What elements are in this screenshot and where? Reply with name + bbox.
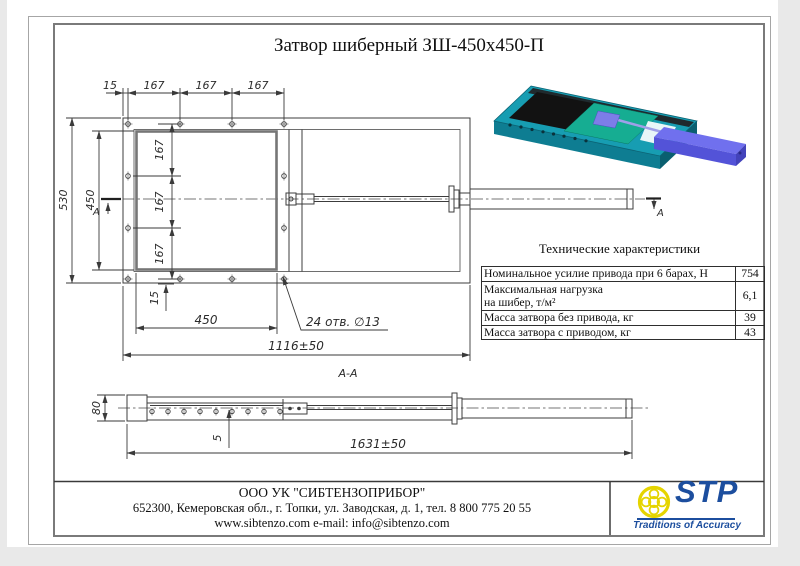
dim-section: 80 5 1631±50 — [90, 395, 632, 459]
dim-1116: 1116±50 — [268, 339, 324, 353]
dim-80: 80 — [90, 401, 103, 415]
company-address: 652300, Кемеровская обл., г. Топки, ул. … — [54, 501, 610, 516]
dim-167-inner-3: 167 — [153, 244, 166, 265]
section-view: A-A — [90, 367, 648, 459]
spec-value: 754 — [736, 267, 765, 282]
spec-label: Максимальная нагрузка на шибер, т/м² — [482, 282, 736, 311]
dim-167-top-1: 167 — [144, 79, 165, 92]
spec-value: 43 — [736, 326, 765, 340]
spec-label-line2: на шибер, т/м² — [484, 296, 733, 309]
dim-1631: 1631±50 — [350, 437, 406, 451]
render-3d — [494, 86, 746, 169]
stp-emblem-icon — [637, 485, 671, 519]
dim-167-inner-2: 167 — [153, 192, 166, 213]
drawing-title: Затвор шиберный ЗШ-450х450-П — [53, 35, 765, 57]
cylinder-section-view — [462, 399, 632, 418]
logo-cell: STP Traditions of Accuracy — [611, 482, 764, 536]
cut-letter-right: A — [656, 208, 664, 219]
dim-167-top-2: 167 — [196, 79, 217, 92]
spec-label-line1: Максимальная нагрузка — [484, 283, 733, 296]
table-row: Масса затвора без привода, кг 39 — [482, 311, 765, 326]
table-row: Максимальная нагрузка на шибер, т/м² 6,1 — [482, 282, 765, 311]
title-block: ООО УК "СИБТЕНЗОПРИБОР" 652300, Кемеровс… — [54, 483, 610, 531]
dim-167-inner-1: 167 — [153, 140, 166, 161]
dim-530: 530 — [57, 190, 70, 211]
dim-167-top-3: 167 — [248, 79, 269, 92]
holes-note: 24 отв. ∅13 — [306, 315, 380, 329]
table-row: Номинальное усилие привода при 6 барах, … — [482, 267, 765, 282]
table-row: Масса затвора с приводом, кг 43 — [482, 326, 765, 340]
section-label: A-A — [337, 367, 357, 380]
dim-bottom: 450 1116±50 24 отв. ∅13 — [123, 273, 470, 361]
section-bolt-holes — [150, 408, 282, 416]
dim-5: 5 — [211, 435, 224, 442]
logo-tagline: Traditions of Accuracy — [627, 520, 747, 531]
company-contacts: www.sibtenzo.com e-mail: info@sibtenzo.c… — [54, 516, 610, 531]
drawing-sheet: A A 15 167 167 167 — [0, 0, 800, 566]
dim-left: 530 450 — [57, 118, 134, 283]
flange-bolt-holes — [124, 120, 289, 284]
dim-450-bottom: 450 — [195, 313, 218, 327]
spec-label: Масса затвора без привода, кг — [482, 311, 736, 326]
spec-label: Масса затвора с приводом, кг — [482, 326, 736, 340]
dim-450-left: 450 — [84, 190, 97, 211]
spec-value: 39 — [736, 311, 765, 326]
dim-top-chain: 15 167 167 167 — [103, 79, 284, 120]
company-name: ООО УК "СИБТЕНЗОПРИБОР" — [54, 485, 610, 501]
specs-title: Технические характеристики — [481, 241, 758, 257]
spec-label: Номинальное усилие привода при 6 барах, … — [482, 267, 736, 282]
dim-15-bottom: 15 — [148, 291, 161, 305]
dim-15-top: 15 — [103, 79, 117, 92]
specs-table: Номинальное усилие привода при 6 барах, … — [481, 266, 765, 340]
spec-value: 6,1 — [736, 282, 765, 311]
stp-logo-text: STP — [675, 474, 738, 510]
